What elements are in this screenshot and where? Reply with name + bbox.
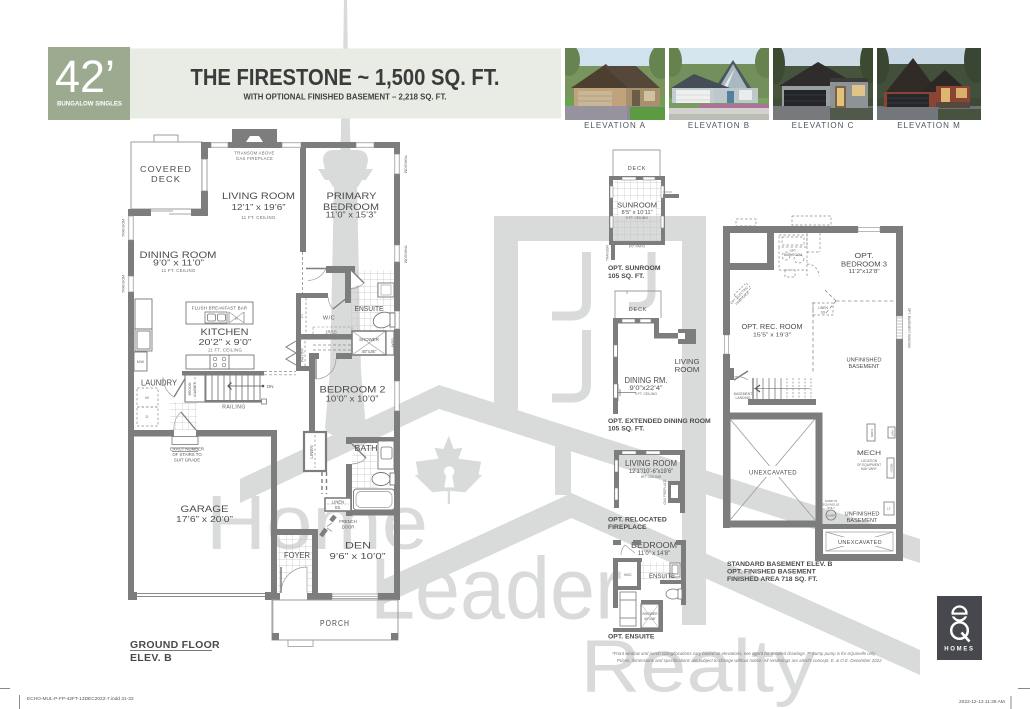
svg-text:9’0”x22’4”: 9’0”x22’4” [630, 385, 663, 392]
svg-text:DN: DN [267, 384, 274, 389]
svg-text:LT: LT [887, 507, 891, 511]
svg-text:LIVING ROOM: LIVING ROOM [222, 191, 295, 201]
svg-text:BATH: BATH [355, 444, 378, 453]
svg-text:PORCH: PORCH [320, 619, 350, 628]
svg-text:TRANSOM: TRANSOM [606, 245, 610, 261]
svg-text:12’1” x 19’6”: 12’1” x 19’6” [232, 203, 286, 212]
svg-text:UNEXCAVATED: UNEXCAVATED [838, 540, 882, 546]
svg-text:DECK: DECK [151, 174, 181, 184]
svg-text:2022-12-13 11:38 AM: 2022-12-13 11:38 AM [959, 699, 1005, 705]
svg-text:OF STAIRS TO: OF STAIRS TO [172, 452, 202, 457]
svg-text:WITH OPTIONAL FINISHED BASEMEN: WITH OPTIONAL FINISHED BASEMENT – 2,218 … [244, 93, 447, 102]
svg-text:LINEN: LINEN [818, 306, 829, 310]
svg-text:SUMP: SUMP [827, 514, 835, 518]
svg-text:2T: 2T [299, 313, 304, 318]
svg-text:PRIMARY: PRIMARY [327, 191, 377, 201]
svg-text:COVERED: COVERED [140, 164, 192, 174]
svg-text:SUNROOM: SUNROOM [617, 201, 657, 210]
svg-text:FLUSH BREAKFAST BAR: FLUSH BREAKFAST BAR [192, 306, 247, 311]
svg-text:11 FT. CEILING: 11 FT. CEILING [241, 215, 276, 220]
svg-text:SS: SS [821, 311, 826, 315]
svg-text:FINISHED AREA 718 SQ. FT.: FINISHED AREA 718 SQ. FT. [727, 576, 818, 583]
svg-text:RAILING: RAILING [222, 405, 246, 411]
svg-text:9FT CEILING: 9FT CEILING [641, 475, 662, 479]
svg-text:OPT. RELOCATED: OPT. RELOCATED [608, 517, 667, 524]
svg-text:Leader: Leader [370, 541, 622, 638]
svg-text:9’0” x 11’0”: 9’0” x 11’0” [153, 259, 204, 268]
svg-text:PANTRY: PANTRY [301, 347, 305, 362]
svg-text:W/C: W/C [323, 316, 335, 322]
svg-text:W: W [145, 395, 149, 400]
svg-text:FURN: FURN [870, 429, 874, 437]
svg-text:BUNGALOW SINGLES: BUNGALOW SINGLES [57, 101, 123, 108]
svg-text:BEDROOM 2: BEDROOM 2 [320, 385, 386, 395]
svg-text:40”x36”: 40”x36” [362, 349, 377, 354]
svg-text:HWT: HWT [891, 430, 895, 437]
svg-text:GROUND FLOOR: GROUND FLOOR [130, 639, 220, 651]
svg-text:40”x36”: 40”x36” [644, 617, 656, 621]
svg-text:SHOWER: SHOWER [642, 612, 658, 616]
svg-text:ELEVATION C: ELEVATION C [792, 121, 855, 130]
svg-text:LIVING ROOM: LIVING ROOM [625, 458, 677, 468]
svg-text:W/C: W/C [624, 572, 632, 577]
svg-text:11’2”x12’8”: 11’2”x12’8” [849, 269, 880, 275]
svg-text:ELEVATION M: ELEVATION M [897, 121, 961, 130]
svg-text:GAS FIREPLACE: GAS FIREPLACE [663, 479, 667, 504]
svg-text:TRANSOM ABOVE: TRANSOM ABOVE [234, 151, 274, 156]
svg-text:OPT. EXTENDED DINING ROOM: OPT. EXTENDED DINING ROOM [608, 418, 711, 425]
svg-text:SS.: SS. [335, 505, 342, 510]
svg-text:1R/1S: 1R/1S [325, 330, 337, 335]
svg-text:20’2” x 9’0”: 20’2” x 9’0” [199, 338, 252, 347]
svg-text:FRENCH: FRENCH [339, 519, 356, 524]
svg-text:LAUNDRY: LAUNDRY [141, 378, 177, 388]
svg-text:BEDROOM 3: BEDROOM 3 [841, 260, 887, 269]
svg-text:LINEN: LINEN [309, 445, 314, 458]
svg-text:TRANSOM: TRANSOM [122, 219, 126, 237]
svg-text:9’6” x 10’0”: 9’6” x 10’0” [330, 552, 386, 561]
svg-text:EXACT NUMBER: EXACT NUMBER [170, 447, 204, 452]
svg-text:OPT. BASEMENT WINDOW: OPT. BASEMENT WINDOW [907, 308, 911, 348]
svg-text:ONLY: ONLY [827, 506, 835, 510]
svg-text:HOMES: HOMES [944, 647, 975, 653]
svg-text:9 FT. CEILING: 9 FT. CEILING [635, 392, 657, 396]
svg-text:17’6” x 20’0”: 17’6” x 20’0” [176, 515, 233, 524]
svg-text:SUIT GRADE: SUIT GRADE [174, 458, 200, 463]
svg-text:105 SQ. FT.: 105 SQ. FT. [608, 273, 644, 280]
svg-text:ECHO-MUL-P-FP-42FT-13DEC2022-7: ECHO-MUL-P-FP-42FT-13DEC2022-7.indd 31-3… [27, 696, 134, 702]
svg-text:M/W: M/W [137, 360, 145, 364]
svg-text:D: D [146, 414, 149, 419]
svg-text:LINEN: LINEN [332, 500, 344, 505]
svg-text:THE FIRESTONE ~ 1,500 SQ. FT.: THE FIRESTONE ~ 1,500 SQ. FT. [191, 64, 500, 90]
svg-text:KITCHEN: KITCHEN [201, 327, 249, 337]
svg-text:OPT. SUNROOM: OPT. SUNROOM [608, 265, 661, 272]
svg-text:STANDARD BASEMENT ELEV. B: STANDARD BASEMENT ELEV. B [727, 561, 832, 568]
svg-text:TRANSOM: TRANSOM [404, 155, 408, 173]
svg-text:FIREPLACE: FIREPLACE [608, 524, 647, 531]
svg-text:Prices, dimensions and specifi: Prices, dimensions and specifications ar… [617, 658, 882, 663]
svg-text:FOYER: FOYER [284, 551, 310, 560]
svg-text:DECK: DECK [628, 166, 646, 172]
svg-text:DECK: DECK [629, 307, 647, 313]
svg-text:DINING RM.: DINING RM. [625, 375, 668, 385]
svg-text:ELEVATION A: ELEVATION A [584, 121, 646, 130]
svg-text:DEN: DEN [345, 541, 371, 551]
svg-text:MECH: MECH [890, 464, 894, 473]
svg-text:MECH: MECH [857, 450, 881, 457]
svg-text:ENSUITE: ENSUITE [649, 573, 675, 580]
svg-text:UNFINISHED: UNFINISHED [845, 512, 880, 518]
svg-text:DOOR: DOOR [342, 525, 355, 530]
svg-text:ELEV. B: ELEV. B [130, 652, 172, 664]
svg-text:GAS FIREPLACE: GAS FIREPLACE [236, 156, 273, 161]
svg-text:BROOM: BROOM [188, 382, 192, 395]
svg-text:10’0” x 10’0”: 10’0” x 10’0” [326, 395, 379, 404]
svg-text:TRANSOM: TRANSOM [404, 245, 408, 263]
svg-text:BASEMENT: BASEMENT [847, 518, 878, 524]
svg-text:9 FT. CEILING: 9 FT. CEILING [626, 216, 648, 220]
svg-text:ENSUITE: ENSUITE [355, 304, 384, 313]
svg-text:15’5” x 19’3”: 15’5” x 19’3” [753, 333, 791, 339]
svg-text:BATHROOM: BATHROOM [784, 253, 803, 257]
svg-text:MAY VARY: MAY VARY [861, 467, 878, 471]
svg-text:11 FT. CEILING: 11 FT. CEILING [208, 348, 243, 353]
svg-text:SHOWER: SHOWER [359, 337, 379, 342]
svg-text:6’0” PATIO: 6’0” PATIO [629, 245, 646, 249]
svg-text:GARAGE: GARAGE [181, 504, 229, 514]
svg-text:11 FT. CEILING: 11 FT. CEILING [161, 268, 196, 273]
svg-text:BASEMENT: BASEMENT [849, 364, 880, 370]
svg-text:OPT. ENSUITE: OPT. ENSUITE [608, 634, 655, 641]
svg-text:UNEXCAVATED: UNEXCAVATED [749, 470, 797, 477]
svg-text:CLOSET: CLOSET [193, 382, 197, 396]
svg-text:ROOM: ROOM [675, 365, 700, 374]
svg-text:OPT. FINISHED BASEMENT: OPT. FINISHED BASEMENT [727, 569, 817, 576]
svg-text:TRANSOM: TRANSOM [122, 275, 126, 293]
svg-text:UNFINISHED: UNFINISHED [847, 358, 882, 364]
svg-text:105 SQ. FT.: 105 SQ. FT. [608, 426, 644, 433]
svg-text:*Front window and porch sizing: *Front window and porch sizing/locations… [612, 651, 876, 656]
svg-text:OPT. REC. ROOM: OPT. REC. ROOM [742, 322, 803, 331]
svg-text:ELEVATION B: ELEVATION B [688, 121, 750, 130]
svg-text:11’0” x 14’8”: 11’0” x 14’8” [638, 551, 670, 557]
svg-text:42’: 42’ [55, 51, 115, 102]
svg-text:11’0” x 15’3”: 11’0” x 15’3” [326, 211, 377, 220]
svg-text:SEAT: SEAT [391, 338, 395, 348]
